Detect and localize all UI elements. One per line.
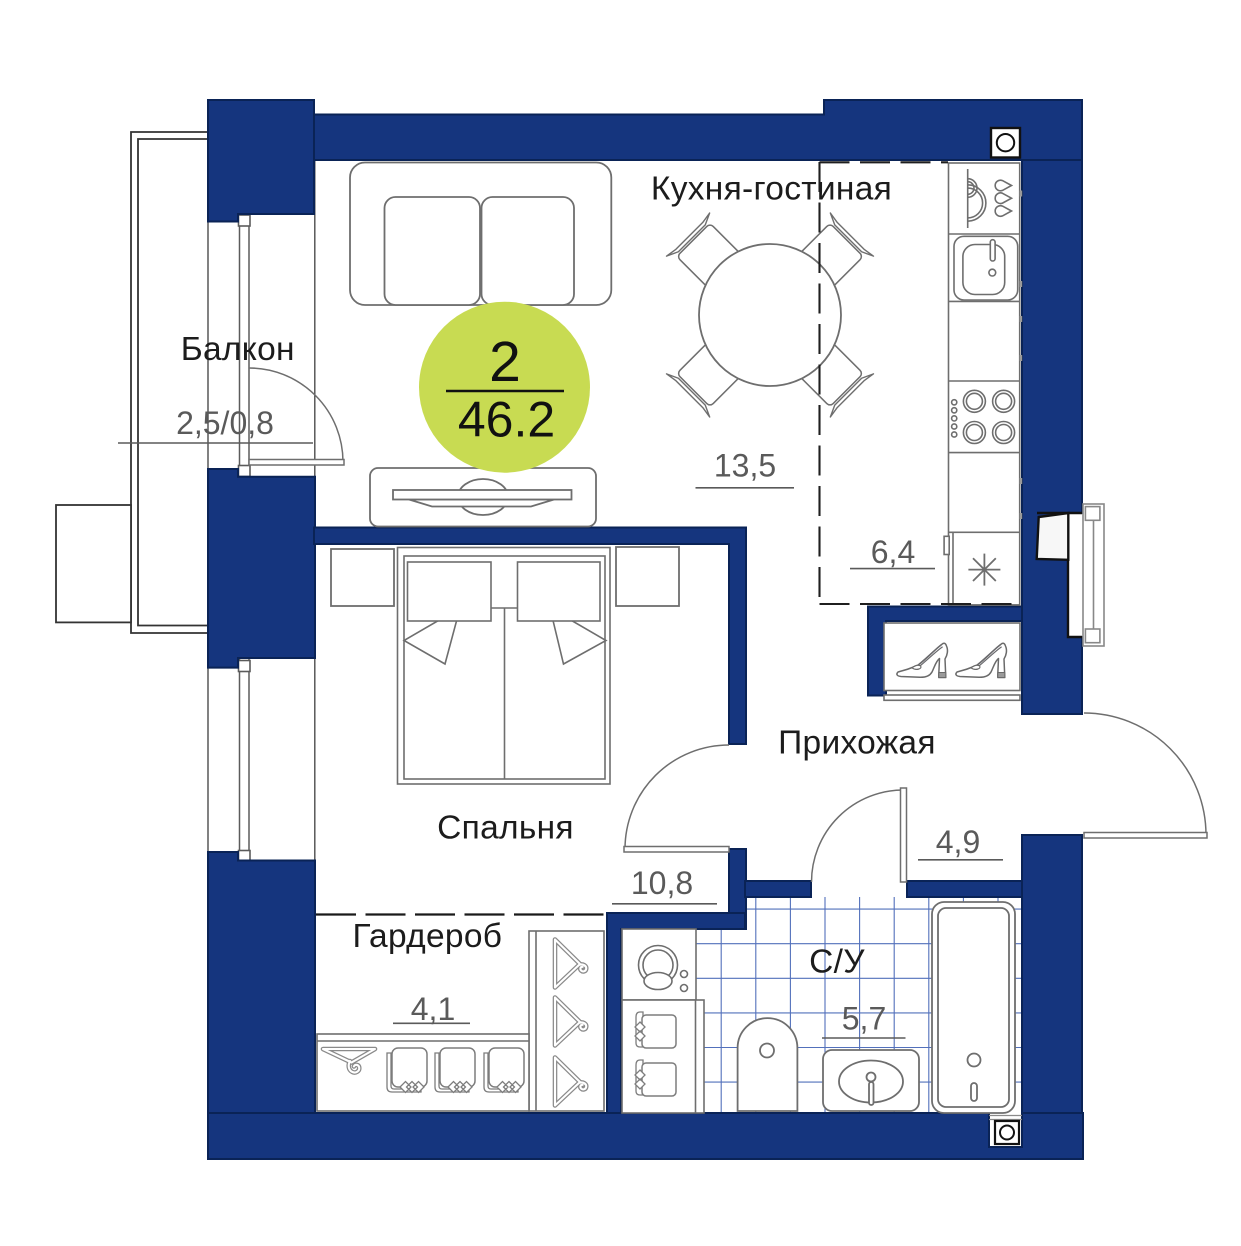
svg-text:2,5/0,8: 2,5/0,8 <box>176 405 274 441</box>
svg-text:46.2: 46.2 <box>458 392 555 448</box>
svg-text:4,9: 4,9 <box>936 824 980 860</box>
svg-text:Кухня-гостиная: Кухня-гостиная <box>651 171 892 208</box>
svg-text:13,5: 13,5 <box>714 448 776 484</box>
svg-text:4,1: 4,1 <box>411 991 455 1027</box>
svg-text:С/У: С/У <box>809 944 865 981</box>
svg-text:Балкон: Балкон <box>181 331 295 368</box>
svg-text:5,7: 5,7 <box>842 1001 886 1037</box>
svg-text:6,4: 6,4 <box>871 534 915 570</box>
svg-text:10,8: 10,8 <box>631 865 693 901</box>
svg-text:Прихожая: Прихожая <box>778 725 936 762</box>
svg-text:Гардероб: Гардероб <box>353 918 503 955</box>
svg-text:2: 2 <box>489 330 521 394</box>
svg-text:Спальня: Спальня <box>437 810 574 847</box>
